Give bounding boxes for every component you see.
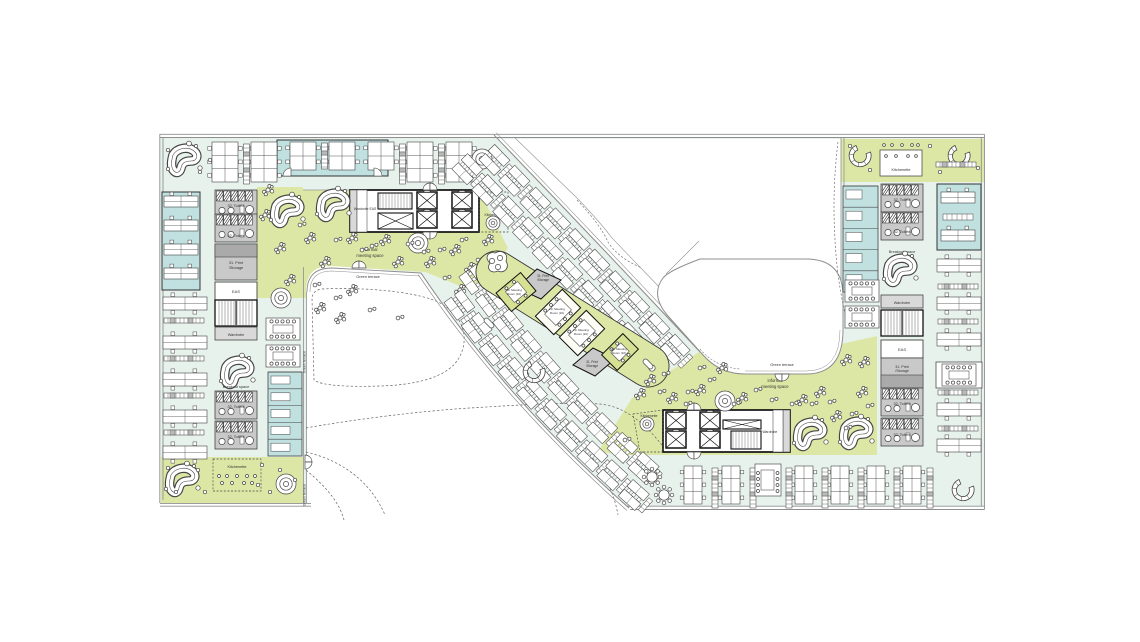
svg-text:32. Toilets: 32. Toilets <box>227 405 244 409</box>
svg-text:32. Toilets: 32. Toilets <box>227 204 244 208</box>
svg-text:Breakout space: Breakout space <box>223 385 249 389</box>
svg-text:32. Toilets: 32. Toilets <box>893 402 910 406</box>
svg-text:/Storage: /Storage <box>895 369 909 373</box>
svg-text:Wardrobe: Wardrobe <box>894 301 911 305</box>
svg-text:Room (10): Room (10) <box>550 311 564 315</box>
svg-text:Room (10): Room (10) <box>612 351 626 355</box>
svg-text:Green terrace: Green terrace <box>303 484 307 506</box>
svg-text:32. Toilets: 32. Toilets <box>893 230 910 234</box>
svg-text:Room (10): Room (10) <box>574 332 588 336</box>
svg-text:Kitchenette: Kitchenette <box>641 414 658 418</box>
svg-text:32. Toilets: 32. Toilets <box>227 234 244 238</box>
svg-text:32. Toilets: 32. Toilets <box>227 435 244 439</box>
svg-text:Breakout space: Breakout space <box>889 250 915 254</box>
svg-text:EAS: EAS <box>898 347 906 352</box>
svg-text:Green terrace: Green terrace <box>303 351 307 373</box>
svg-text:meeting space: meeting space <box>761 384 789 389</box>
svg-text:Green terrace: Green terrace <box>356 275 379 279</box>
svg-text:/Storage: /Storage <box>586 364 598 368</box>
svg-text:Kitchenette: Kitchenette <box>228 465 247 469</box>
svg-text:Room (10): Room (10) <box>507 292 521 296</box>
svg-text:/Storage: /Storage <box>537 278 549 282</box>
svg-text:31. Print: 31. Print <box>229 261 244 265</box>
svg-text:EAS: EAS <box>232 289 240 294</box>
svg-text:Kitchenette: Kitchenette <box>892 168 911 172</box>
svg-text:32. Toilets: 32. Toilets <box>893 433 910 437</box>
svg-text:meeting space: meeting space <box>356 253 384 258</box>
svg-text:Green terrace: Green terrace <box>770 363 793 367</box>
svg-text:/Storage: /Storage <box>229 266 243 270</box>
svg-text:Wardrobe EAS: Wardrobe EAS <box>354 207 377 211</box>
svg-text:32. Toilets: 32. Toilets <box>893 198 910 202</box>
svg-text:Wardrobe: Wardrobe <box>228 333 245 337</box>
